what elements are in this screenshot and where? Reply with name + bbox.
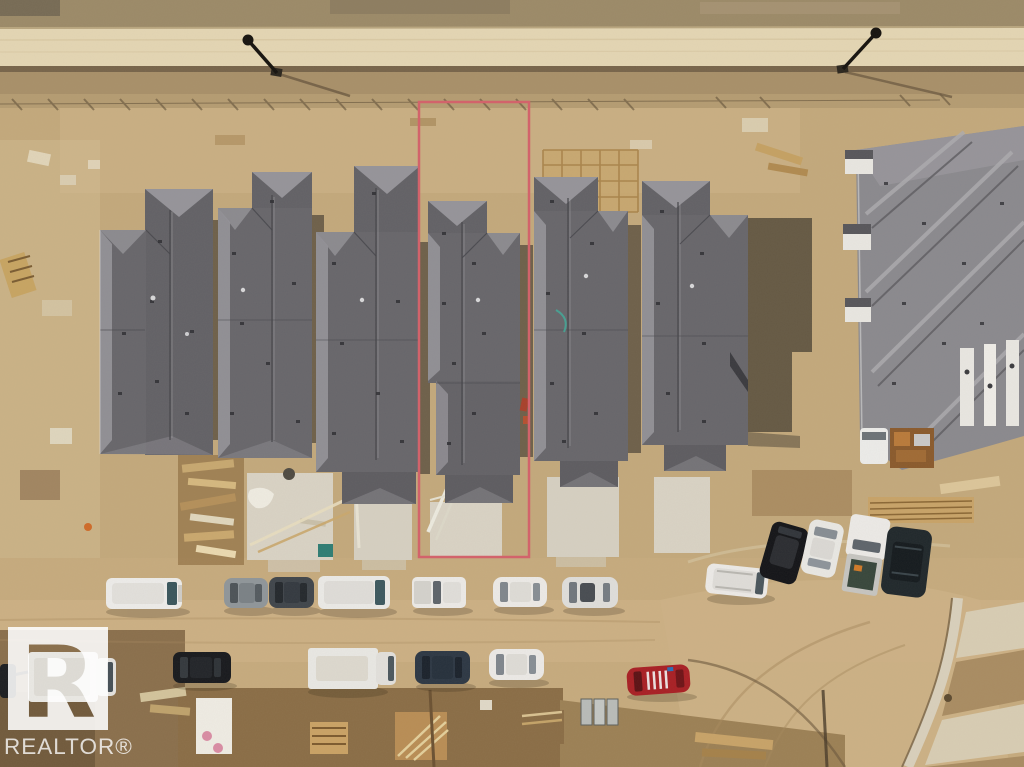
realtor-logo [8, 627, 108, 730]
aerial-photo: R [0, 0, 1024, 767]
realtor-text: REALTOR® [4, 734, 133, 759]
photo-grain [0, 0, 1024, 767]
